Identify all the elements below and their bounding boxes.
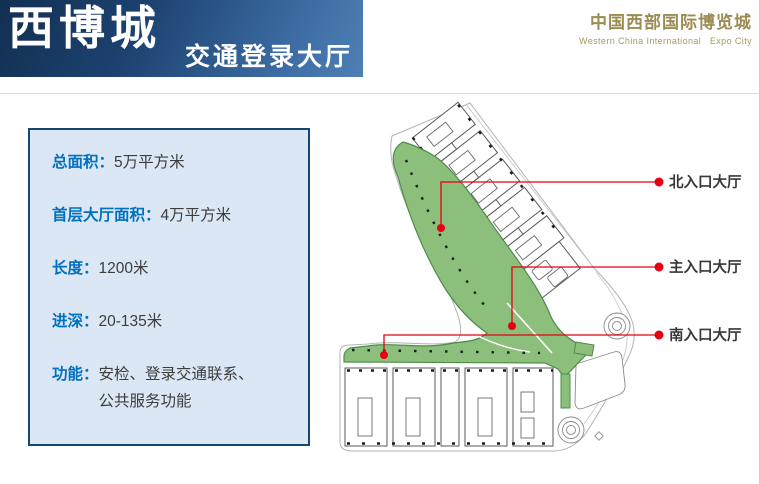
entrance-dot-north bbox=[437, 224, 445, 232]
roundabout-icon bbox=[558, 417, 584, 443]
hall-connector bbox=[441, 368, 459, 446]
label-bullet bbox=[655, 331, 664, 340]
compass-diamond bbox=[595, 432, 603, 440]
label-bullet bbox=[655, 178, 664, 187]
label-bullet bbox=[655, 263, 664, 272]
concourse-finger bbox=[561, 374, 570, 408]
entrance-label-main: 主入口大厅 bbox=[669, 258, 742, 276]
floor-plan: 北入口大厅 主入口大厅 南入口大厅 bbox=[0, 0, 760, 484]
slide: 西博城 交通登录大厅 中国西部国际博览城 Western China Inter… bbox=[0, 0, 760, 484]
entrance-label-south: 南入口大厅 bbox=[669, 326, 742, 344]
entrance-label-north: 北入口大厅 bbox=[669, 173, 742, 191]
south-wing-halls bbox=[345, 368, 553, 446]
entrance-dot-south bbox=[380, 351, 388, 359]
entrance-dot-main bbox=[508, 322, 516, 330]
concourse-patch bbox=[574, 342, 594, 356]
